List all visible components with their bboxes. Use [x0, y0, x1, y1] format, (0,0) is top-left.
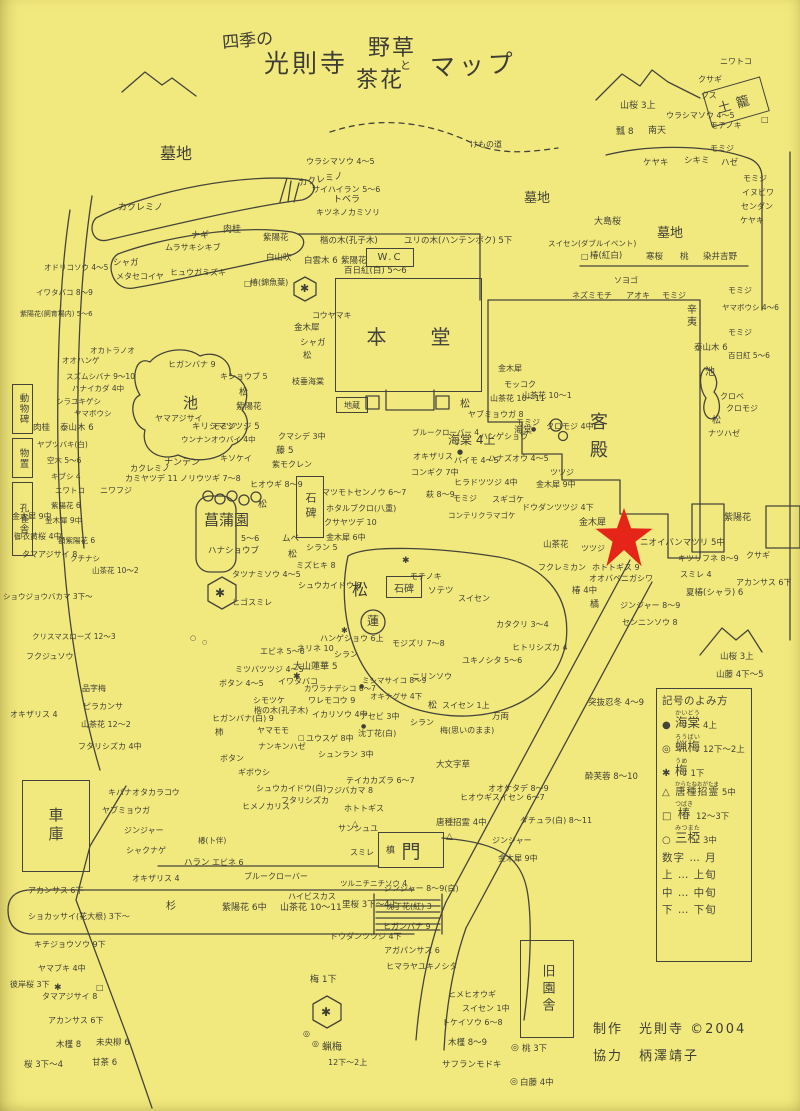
building-garage: 車庫 [22, 780, 90, 872]
legend-title: 記号のよみ方 [662, 693, 746, 708]
path-line [78, 196, 92, 548]
hexagon-mark [208, 577, 236, 609]
garage-label: 車庫 [46, 807, 67, 845]
wall-line [442, 838, 530, 1020]
stone-steps [374, 894, 442, 934]
legend-item: ◎蝋梅ろうばい12下〜2上 [662, 734, 746, 755]
mountain-icon [596, 70, 700, 100]
legend-note: 数字 … 月 [662, 850, 746, 867]
building-main-hall: 本堂 [335, 278, 482, 392]
small-building [692, 504, 724, 552]
stone [550, 419, 562, 431]
legend-item: ✱梅うめ1下 [662, 758, 746, 779]
mountain-icon [122, 72, 196, 96]
credits: 制作光則寺 ©2004 協力柄澤靖子 [593, 1018, 746, 1072]
porch-outline [386, 390, 434, 410]
building-old-garden-house: 旧園舎 [520, 940, 574, 1038]
iris-garden-outline [196, 496, 236, 572]
wc-label: W.C [378, 252, 403, 263]
stone-monument-2: 石碑 [386, 576, 422, 598]
stone-monument-2-label: 石碑 [394, 580, 414, 595]
current-location-star [596, 508, 653, 566]
credit-cooperation-value: 柄澤靖子 [639, 1049, 699, 1064]
hedge-blob [111, 230, 304, 289]
approach-path [446, 560, 630, 902]
earthen-basket-label: 土籠 [715, 88, 757, 117]
jizo-statue: 地蔵 [336, 397, 368, 413]
gate-label: 門 [401, 837, 420, 864]
credit-production-label: 制作 [593, 1022, 623, 1037]
grass-icon [280, 178, 299, 202]
animal-monument-label: 動物碑 [16, 393, 30, 425]
stone [559, 432, 568, 441]
stone-monument-label: 石碑 [302, 492, 318, 522]
old-garden-house-label: 旧園舎 [538, 964, 557, 1015]
guest-hall-label: 客殿 [584, 412, 610, 468]
legend-note: 中 … 中旬 [662, 885, 746, 902]
front-hedge [8, 890, 414, 934]
hexagon-mark [294, 277, 316, 301]
main-hall-label: 本堂 [367, 321, 495, 350]
mountain-icon [700, 628, 762, 655]
building-wc: W.C [366, 248, 414, 267]
legend-item: △唐種招霊からたねおがたま5中 [662, 782, 746, 798]
legend-note: 上 … 上旬 [662, 867, 746, 884]
legend-notes: 数字 … 月上 … 上旬中 … 中旬下 … 下旬 [662, 850, 746, 919]
storage-label: 物置 [16, 448, 30, 469]
credit-cooperation: 協力柄澤靖子 [593, 1045, 746, 1064]
pond-shape [133, 350, 248, 460]
building-gate: 門 [378, 832, 444, 868]
animal-trail [330, 123, 558, 152]
legend-item: ●海棠かいどう4上 [662, 710, 746, 731]
path-line [58, 210, 100, 770]
building-peacock-house: 孔雀舎 [12, 482, 33, 556]
stone [251, 492, 261, 502]
credit-production-value: 光則寺 ©2004 [639, 1022, 746, 1037]
stone-monument: 石碑 [296, 476, 324, 538]
building-storage: 物置 [12, 438, 33, 478]
jizo-label: 地蔵 [344, 400, 360, 411]
legend-item: □椿つばき12〜3下 [662, 801, 746, 822]
legend-note: 下 … 下旬 [662, 902, 746, 919]
legend-items: ●海棠かいどう4上◎蝋梅ろうばい12下〜2上✱梅うめ1下△唐種招霊からたねおがた… [662, 710, 746, 846]
animal-monument: 動物碑 [12, 384, 33, 434]
hexagon-mark [313, 996, 341, 1028]
garden-map: 四季の 光則寺 野草 と 茶花 マップ 本堂 W.C 門 車庫 旧園舎 石碑 石… [0, 0, 800, 1111]
garden-loop [344, 548, 566, 716]
approach-path [466, 582, 652, 928]
hedge-line [606, 147, 762, 310]
credit-production: 制作光則寺 ©2004 [593, 1018, 746, 1037]
pond-shape [701, 368, 720, 419]
stone [239, 495, 249, 505]
legend-box: 記号のよみ方 ●海棠かいどう4上◎蝋梅ろうばい12下〜2上✱梅うめ1下△唐種招霊… [656, 688, 752, 962]
title-teaflower: 茶花 [356, 62, 404, 94]
legend-item: ○三椏みつまた3中 [662, 825, 746, 846]
small-building [766, 506, 800, 548]
title-temple-name: 光則寺 [264, 44, 348, 80]
porch-post [436, 396, 449, 409]
approach-path [444, 928, 466, 1050]
peacock-house-label: 孔雀舎 [16, 503, 30, 535]
credit-cooperation-label: 協力 [593, 1049, 623, 1064]
title-map-word: マップ [429, 44, 518, 85]
lotus-circle [361, 610, 385, 634]
